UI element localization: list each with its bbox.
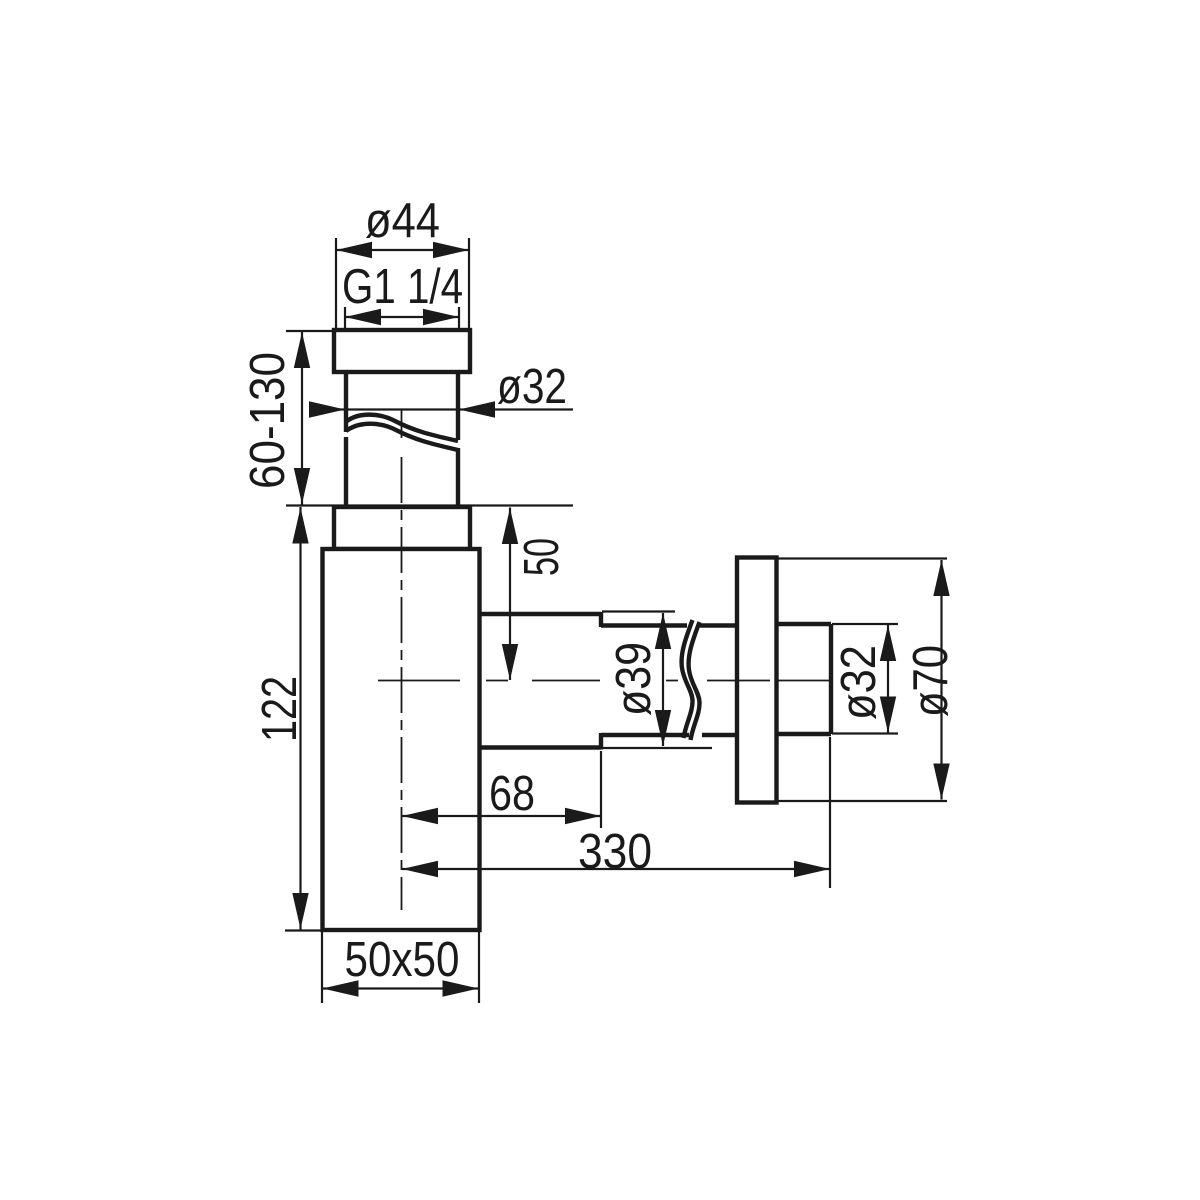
svg-text:50x50: 50x50 bbox=[345, 933, 460, 987]
svg-text:ø70: ø70 bbox=[904, 645, 958, 717]
svg-text:68: 68 bbox=[489, 767, 535, 821]
svg-text:330: 330 bbox=[578, 825, 652, 879]
svg-text:ø32: ø32 bbox=[497, 360, 567, 414]
svg-text:60-130: 60-130 bbox=[241, 352, 295, 489]
svg-text:ø44: ø44 bbox=[365, 194, 440, 248]
svg-text:50: 50 bbox=[515, 538, 569, 576]
svg-text:ø32: ø32 bbox=[832, 645, 886, 720]
svg-text:122: 122 bbox=[253, 676, 307, 742]
svg-text:ø39: ø39 bbox=[607, 642, 661, 716]
svg-text:G1 1/4: G1 1/4 bbox=[342, 260, 463, 314]
